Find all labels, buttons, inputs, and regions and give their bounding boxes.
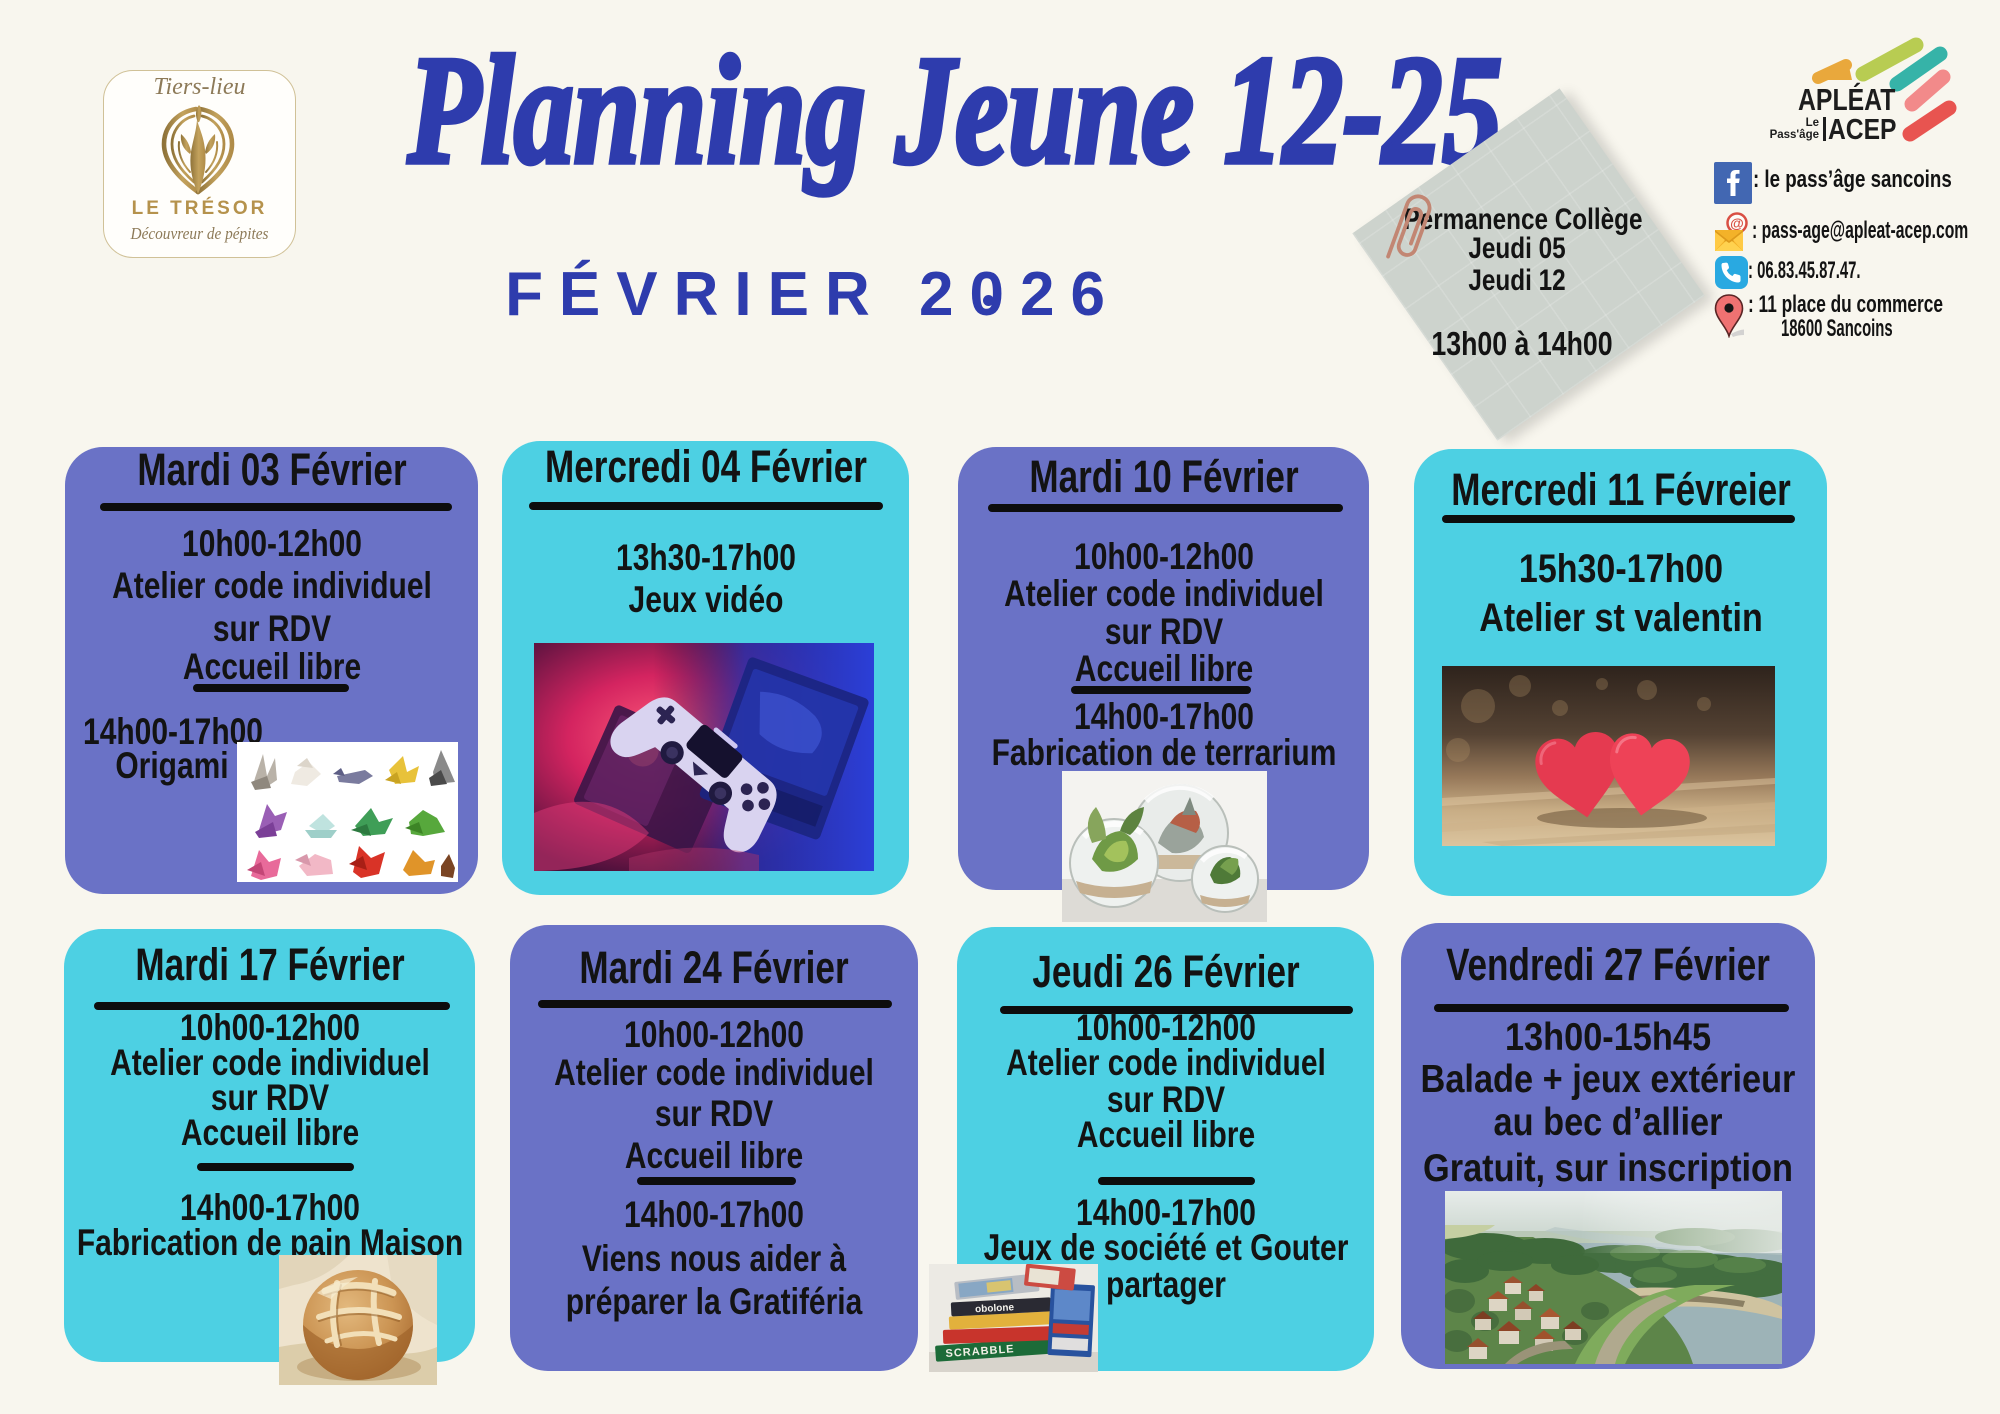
svg-text:obolone: obolone xyxy=(975,1302,1015,1315)
svg-text:@: @ xyxy=(1730,215,1744,231)
